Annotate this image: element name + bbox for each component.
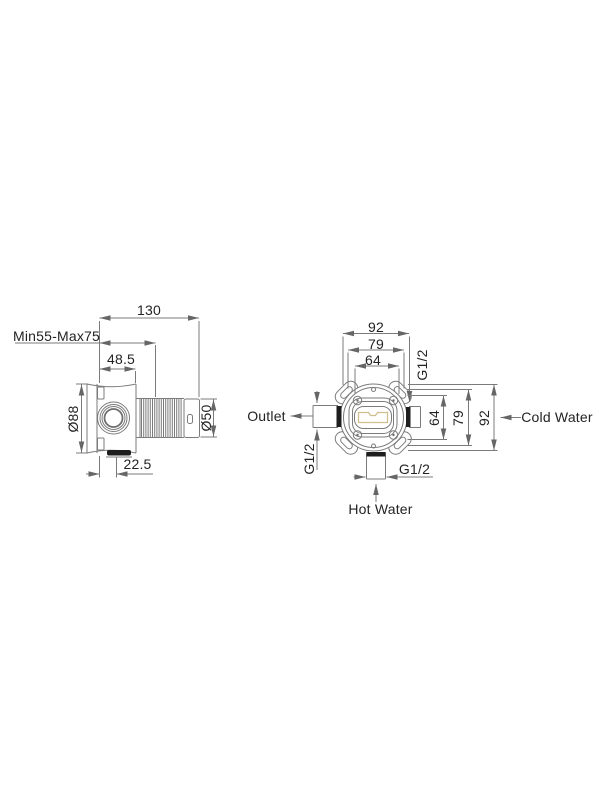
dim-height-middle-label: 79	[450, 410, 466, 426]
dim-body-diameter-label: Ø88	[65, 405, 81, 432]
dim-width-middle-label: 79	[368, 336, 384, 352]
dim-width-outer-label: 92	[368, 319, 384, 335]
technical-drawing-page: 130 Min55-Max75 48.5 Ø88 Ø50 22.5 92 79 …	[0, 0, 600, 800]
outlet-label: Outlet	[247, 408, 286, 424]
hot-water-label: Hot Water	[348, 501, 412, 517]
valve-drawing-linework	[0, 0, 600, 800]
thread-cold-label: G1/2	[414, 349, 430, 380]
mounting-clip-top	[98, 387, 105, 399]
dim-outlet-offset-label: 22.5	[123, 456, 151, 472]
dim-body-depth-label: 48.5	[107, 351, 135, 367]
side-port-circle	[98, 402, 130, 434]
ribbed-sleeve	[136, 399, 184, 438]
dim-install-depth-range-label: Min55-Max75	[13, 328, 100, 344]
dim-height-outer-label: 92	[476, 410, 492, 426]
outlet-port-left	[313, 406, 342, 428]
thread-outlet-label: G1/2	[301, 443, 317, 474]
dim-overall-length-label: 130	[137, 302, 161, 318]
side-view-body	[87, 384, 200, 457]
cold-water-label: Cold Water	[521, 409, 593, 425]
thread-hot-label: G1/2	[399, 461, 430, 477]
bottom-port-dark	[107, 450, 131, 456]
mounting-clip-bottom	[98, 438, 105, 450]
dim-sleeve-diameter-label: Ø50	[198, 404, 214, 431]
dim-width-inner-label: 64	[365, 352, 381, 368]
hot-water-port-bottom	[367, 452, 386, 479]
cold-water-port-right	[406, 407, 421, 428]
dim-height-inner-label: 64	[426, 410, 442, 426]
